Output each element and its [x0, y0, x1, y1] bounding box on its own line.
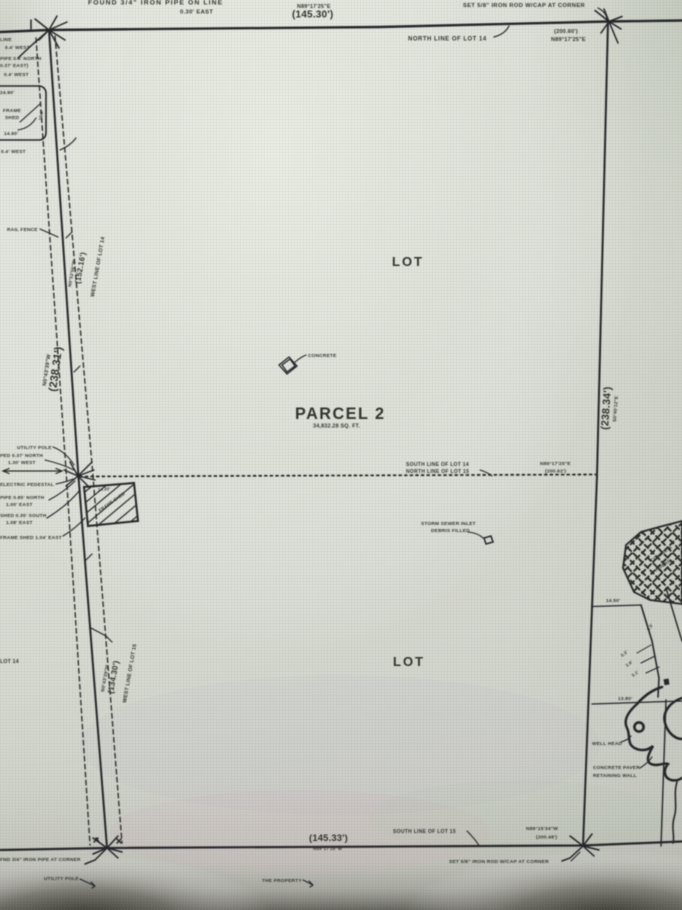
svg-text:N89°17'25"W: N89°17'25"W [313, 846, 343, 851]
svg-text:SET 5/8" IRON ROD W/CAP AT COR: SET 5/8" IRON ROD W/CAP AT CORNER [463, 3, 586, 9]
svg-text:24.90': 24.90' [0, 90, 14, 96]
svg-text:FOUND 3/4" IRON PIPE ON LINE: FOUND 3/4" IRON PIPE ON LINE [88, 0, 223, 7]
svg-text:LOT: LOT [392, 254, 424, 269]
svg-text:THE PROPERTY: THE PROPERTY [262, 878, 302, 884]
svg-text:(200.60'): (200.60') [554, 29, 578, 35]
svg-text:FND 3/4" IRON PIPE AT CORNER: FND 3/4" IRON PIPE AT CORNER [0, 857, 81, 863]
svg-text:RETAINING WALL: RETAINING WALL [593, 773, 637, 779]
svg-text:LOT 14: LOT 14 [0, 659, 19, 665]
svg-text:(145.30'): (145.30') [292, 10, 333, 21]
svg-text:0.4' WEST: 0.4' WEST [4, 72, 29, 78]
svg-text:13.80': 13.80' [618, 696, 632, 702]
svg-text:N89°17'25"E: N89°17'25"E [540, 461, 571, 467]
svg-text:SET 5/8" IRON ROD W/CAP AT COR: SET 5/8" IRON ROD W/CAP AT CORNER [449, 859, 549, 865]
svg-text:(200.62'): (200.62') [545, 469, 566, 475]
svg-text:ELECTRIC PEDESTAL: ELECTRIC PEDESTAL [0, 482, 54, 488]
svg-text:PARCEL 2: PARCEL 2 [295, 405, 386, 423]
svg-text:1.30' WEST: 1.30' WEST [8, 460, 36, 466]
svg-text:(200.48'): (200.48') [536, 835, 557, 841]
svg-text:0.30' EAST: 0.30' EAST [180, 10, 213, 16]
svg-text:0.37' EAST): 0.37' EAST) [0, 63, 29, 69]
svg-text:LOT: LOT [393, 654, 425, 669]
svg-text:14.50': 14.50' [606, 598, 620, 604]
svg-text:0.4' WEST: 0.4' WEST [1, 149, 26, 155]
svg-text:1.00' EAST: 1.00' EAST [6, 502, 33, 508]
svg-text:FRAME SHED 1.04' EAST: FRAME SHED 1.04' EAST [0, 535, 62, 541]
svg-text:UTILITY POLE: UTILITY POLE [17, 445, 52, 451]
svg-text:SHED 0.35' SOUTH: SHED 0.35' SOUTH [0, 513, 47, 519]
svg-text:NORTH LINE OF LOT 14: NORTH LINE OF LOT 14 [408, 37, 487, 43]
svg-text:PED 0.37' NORTH: PED 0.37' NORTH [0, 453, 43, 459]
svg-text:FRAME: FRAME [3, 108, 22, 114]
svg-text:UTILITY POLE: UTILITY POLE [44, 876, 79, 882]
svg-text:1.08' EAST: 1.08' EAST [6, 520, 33, 526]
svg-text:PIPE 0.4' NORTH: PIPE 0.4' NORTH [0, 56, 42, 62]
svg-text:DEBRIS FILLED: DEBRIS FILLED [431, 528, 470, 534]
svg-text:CONCRETE: CONCRETE [308, 353, 337, 359]
svg-text:14.20': 14.20' [98, 486, 111, 492]
svg-text:N89°15'34"W: N89°15'34"W [526, 826, 558, 832]
svg-text:SHED: SHED [5, 115, 19, 121]
svg-text:NORTH LINE OF LOT 15: NORTH LINE OF LOT 15 [406, 469, 469, 475]
svg-text:WELL HEAD: WELL HEAD [592, 741, 623, 747]
svg-text:34,832.28 SQ. FT.: 34,832.28 SQ. FT. [313, 424, 360, 430]
svg-text:0.4' WEST: 0.4' WEST [5, 45, 30, 51]
svg-text:SOUTH LINE OF LOT 15: SOUTH LINE OF LOT 15 [393, 829, 456, 835]
svg-text:(145.33'): (145.33') [309, 832, 348, 843]
svg-text:LINE: LINE [0, 37, 12, 43]
svg-text:N89°17'25"E: N89°17'25"E [551, 37, 586, 43]
svg-text:SOUTH LINE OF LOT 14: SOUTH LINE OF LOT 14 [406, 462, 469, 468]
svg-text:14.90': 14.90' [4, 131, 18, 137]
svg-text:STORM SEWER INLET: STORM SEWER INLET [421, 521, 476, 527]
svg-text:CONCRETE PAVER: CONCRETE PAVER [593, 765, 640, 771]
svg-text:RAIL FENCE: RAIL FENCE [7, 227, 38, 233]
svg-text:PIPE 0.85' NORTH: PIPE 0.85' NORTH [0, 495, 45, 501]
